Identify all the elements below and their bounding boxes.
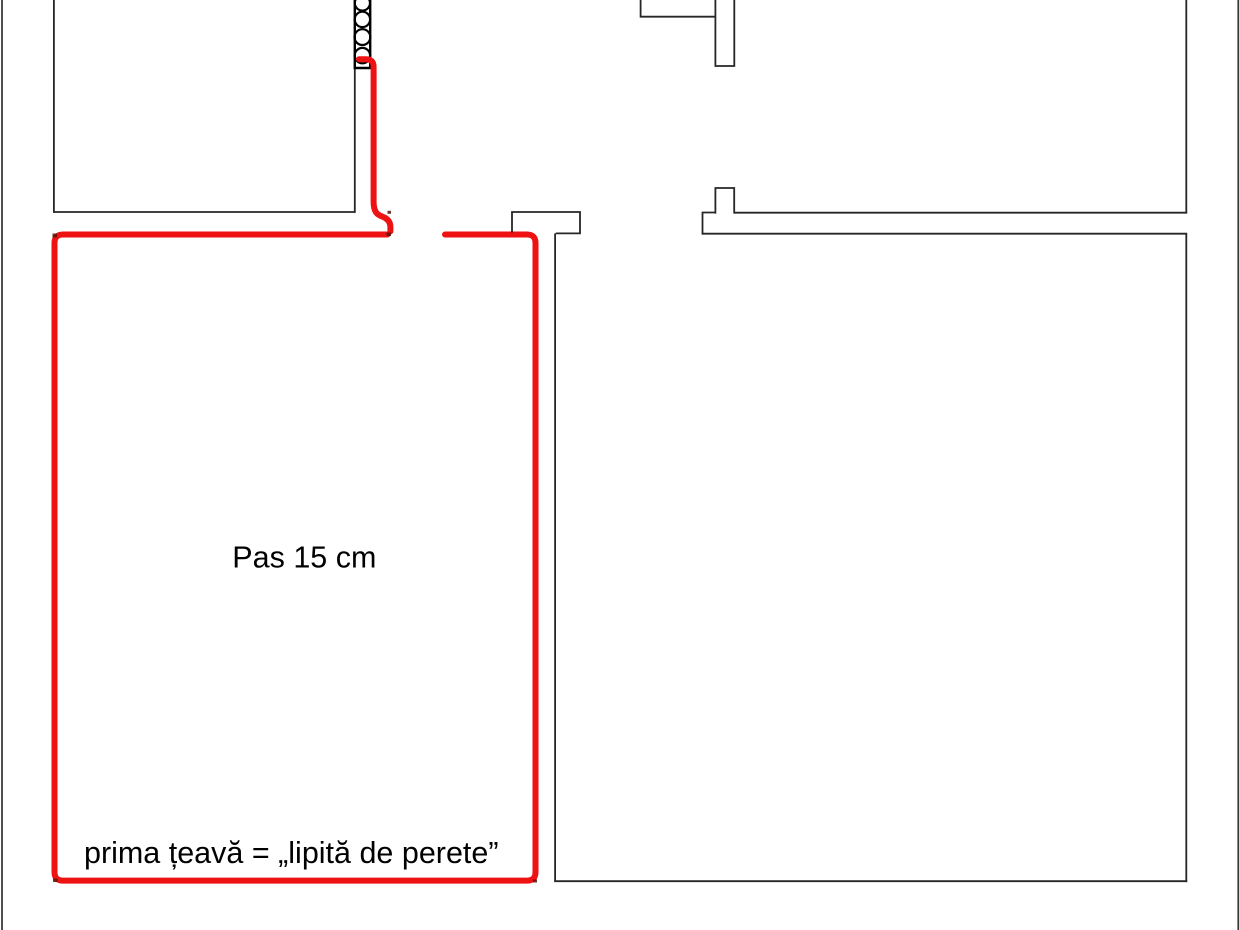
svg-text:Pas 15 cm: Pas 15 cm [232, 541, 376, 575]
svg-text:prima țeavă = „lipită de peret: prima țeavă = „lipită de perete” [84, 836, 499, 870]
